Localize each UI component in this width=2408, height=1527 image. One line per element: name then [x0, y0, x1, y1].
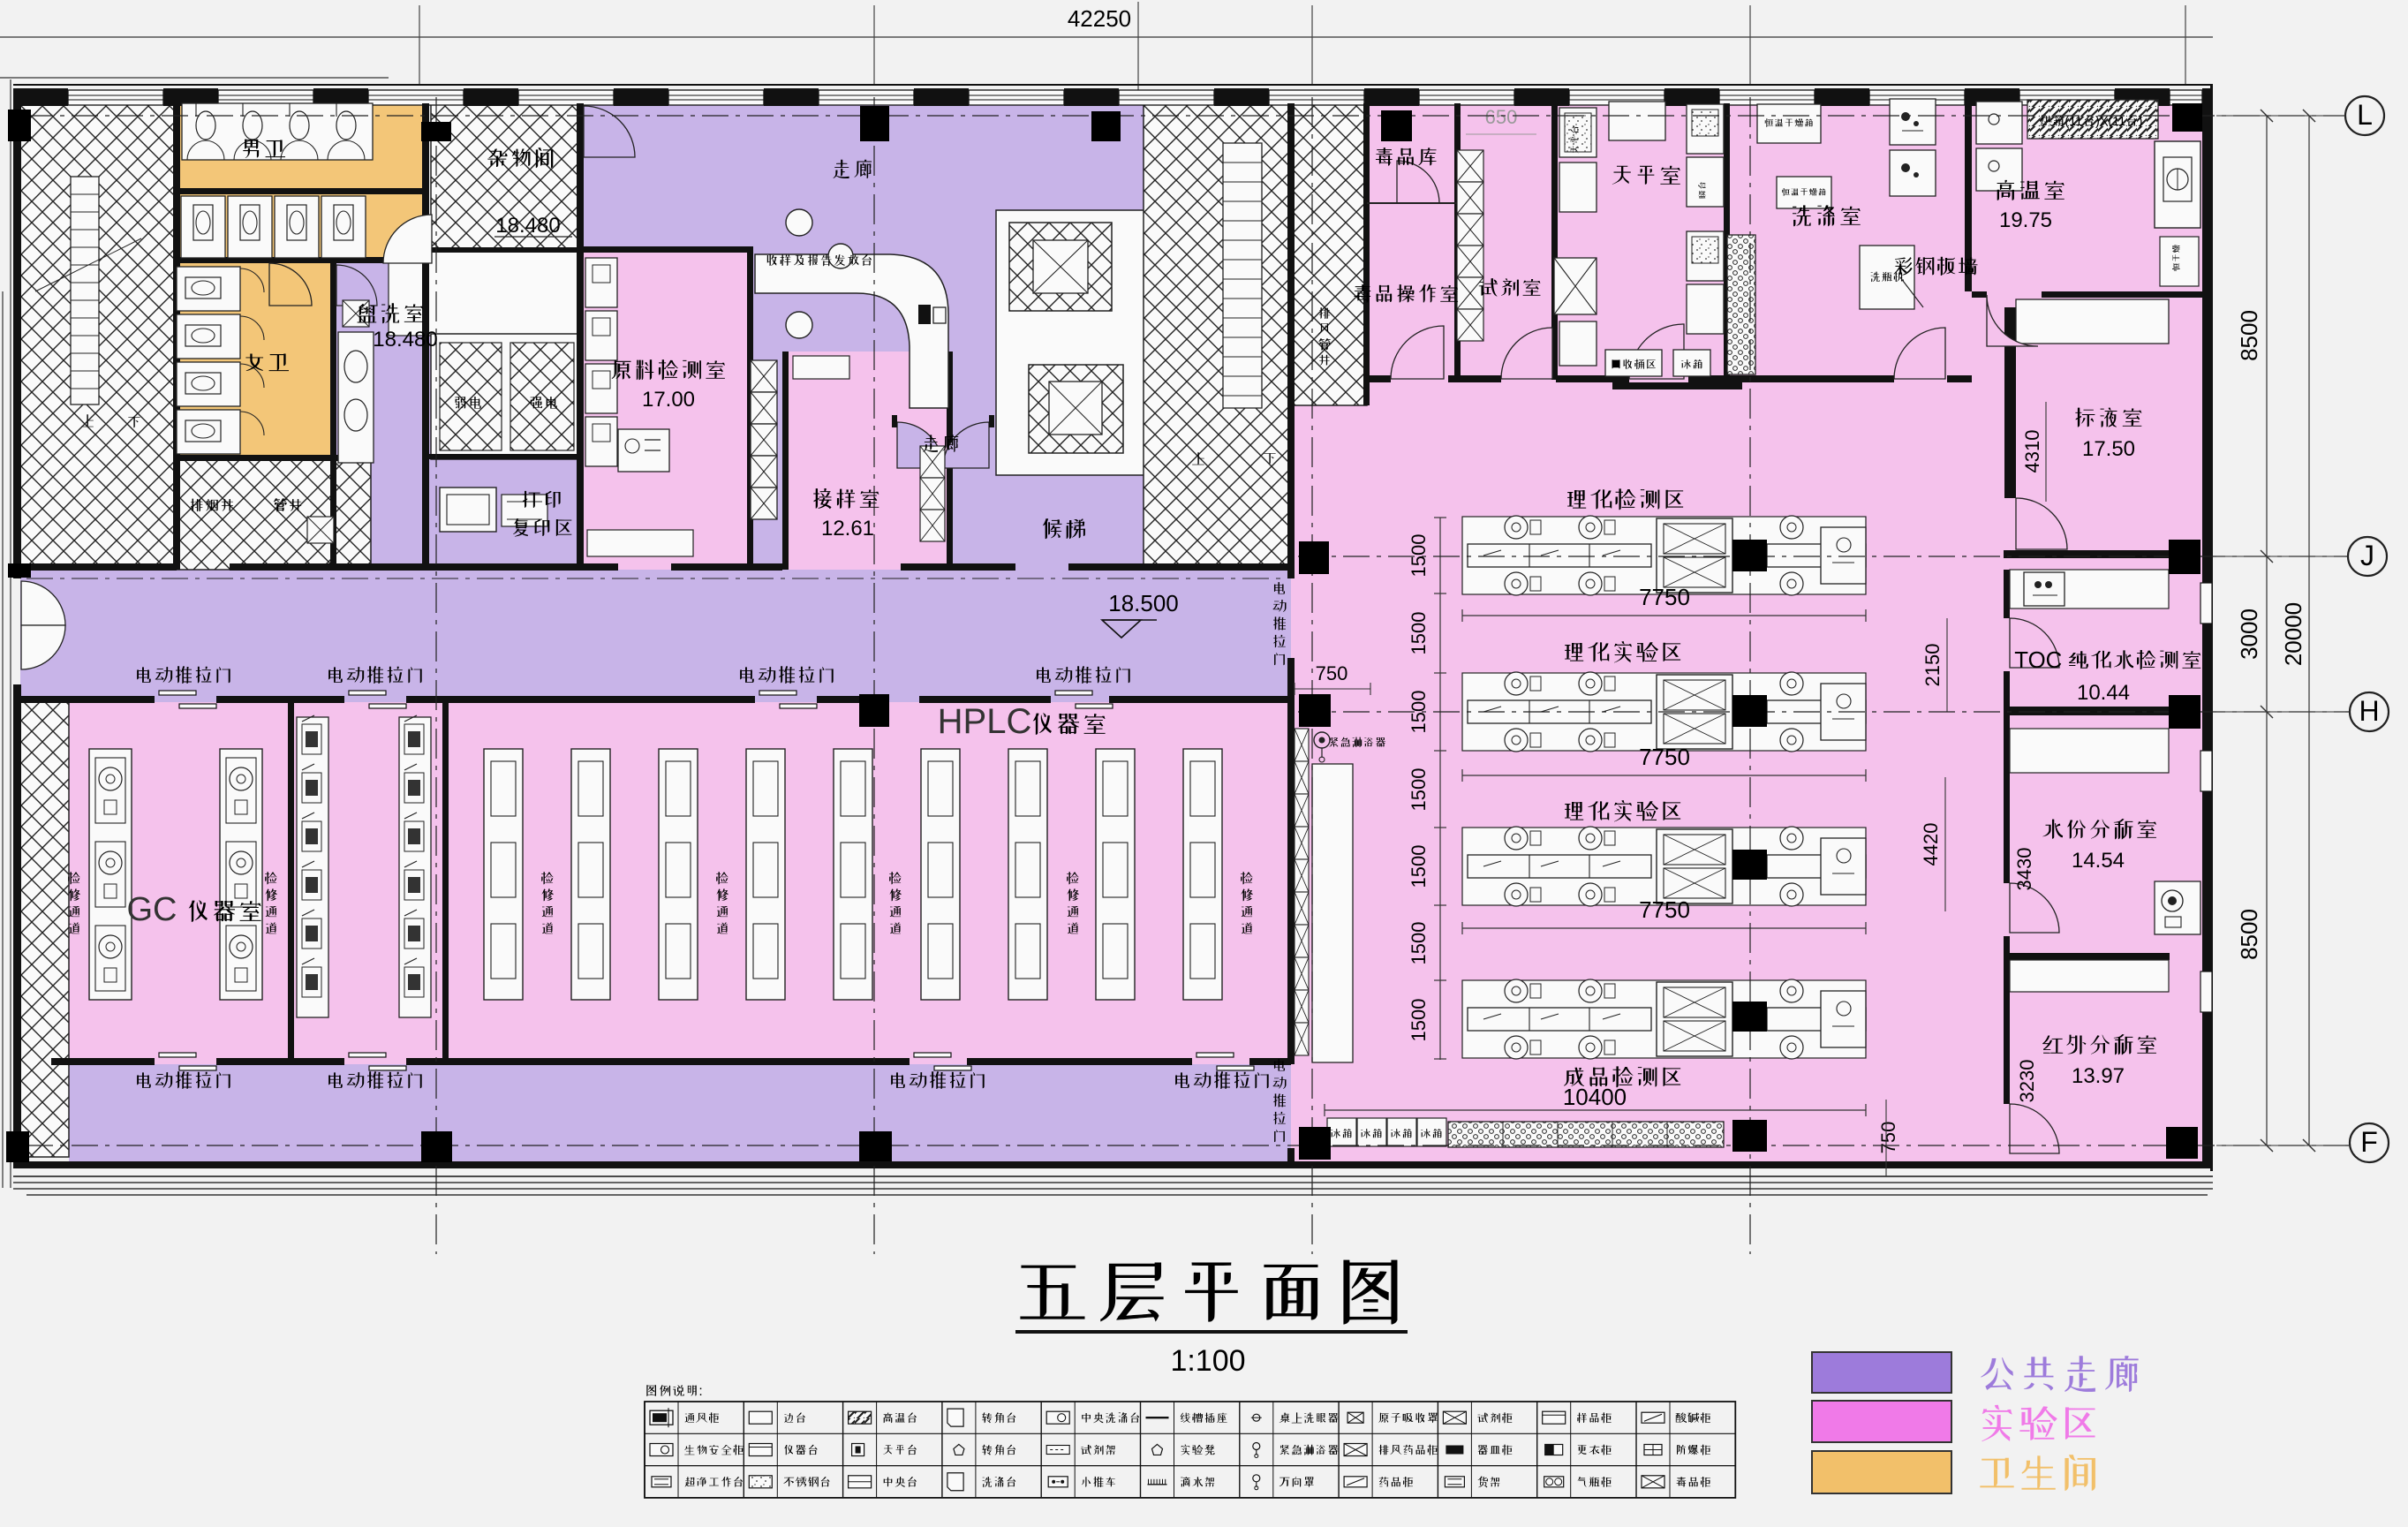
svg-text:1500: 1500 [1408, 612, 1430, 655]
svg-text:HPLC: HPLC [938, 702, 1032, 741]
svg-text::: : [698, 1384, 702, 1399]
svg-text:GC: GC [127, 891, 177, 928]
svg-text:17.50: 17.50 [2082, 437, 2135, 461]
svg-text:H: H [2359, 695, 2379, 727]
svg-text:7750: 7750 [1639, 584, 1690, 610]
svg-text:F: F [2360, 1126, 2378, 1158]
svg-text:): ) [2139, 115, 2143, 129]
svg-text:1500: 1500 [1408, 845, 1430, 888]
svg-text:17.00: 17.00 [642, 388, 695, 412]
svg-text:18.480: 18.480 [373, 328, 437, 352]
svg-text:14.54: 14.54 [2072, 849, 2125, 873]
svg-text:19.75: 19.75 [1999, 208, 2052, 232]
svg-text:750: 750 [1877, 1122, 1899, 1154]
svg-text:1:100: 1:100 [1170, 1344, 1245, 1378]
svg-text:13.97: 13.97 [2072, 1064, 2125, 1088]
svg-text:(11: (11 [2065, 115, 2082, 129]
svg-text:1500: 1500 [1408, 768, 1430, 812]
svg-text:1500: 1500 [1408, 922, 1430, 965]
svg-text:18.500: 18.500 [1108, 590, 1179, 616]
svg-text:4420: 4420 [1920, 823, 1942, 866]
svg-text:10400: 10400 [1563, 1084, 1627, 1110]
svg-text:3230: 3230 [2016, 1060, 2038, 1103]
svg-text:1500: 1500 [1408, 534, 1430, 578]
svg-text:TOC: TOC [2014, 648, 2062, 673]
svg-text:1500: 1500 [1408, 999, 1430, 1042]
svg-text:3000: 3000 [2236, 609, 2262, 660]
svg-text:20000: 20000 [2280, 602, 2306, 666]
svg-text:650: 650 [1485, 106, 1518, 128]
svg-text:18.480: 18.480 [495, 214, 560, 238]
svg-text:42250: 42250 [1068, 5, 1131, 32]
svg-text:8500: 8500 [2236, 310, 2262, 361]
svg-text:L: L [2357, 99, 2373, 131]
svg-text:4310: 4310 [2021, 430, 2043, 473]
svg-text:12.61: 12.61 [821, 517, 874, 540]
svg-text:10.44: 10.44 [2077, 681, 2130, 705]
svg-text:J: J [2360, 540, 2374, 571]
svg-text:7750: 7750 [1639, 896, 1690, 923]
svg-text:3430: 3430 [2013, 848, 2035, 891]
svg-text:)X(11: )X(11 [2095, 115, 2125, 129]
svg-text:2150: 2150 [1921, 644, 1944, 687]
svg-text:8500: 8500 [2236, 909, 2262, 960]
svg-text:7750: 7750 [1639, 744, 1690, 770]
svg-text:750: 750 [1316, 662, 1348, 684]
